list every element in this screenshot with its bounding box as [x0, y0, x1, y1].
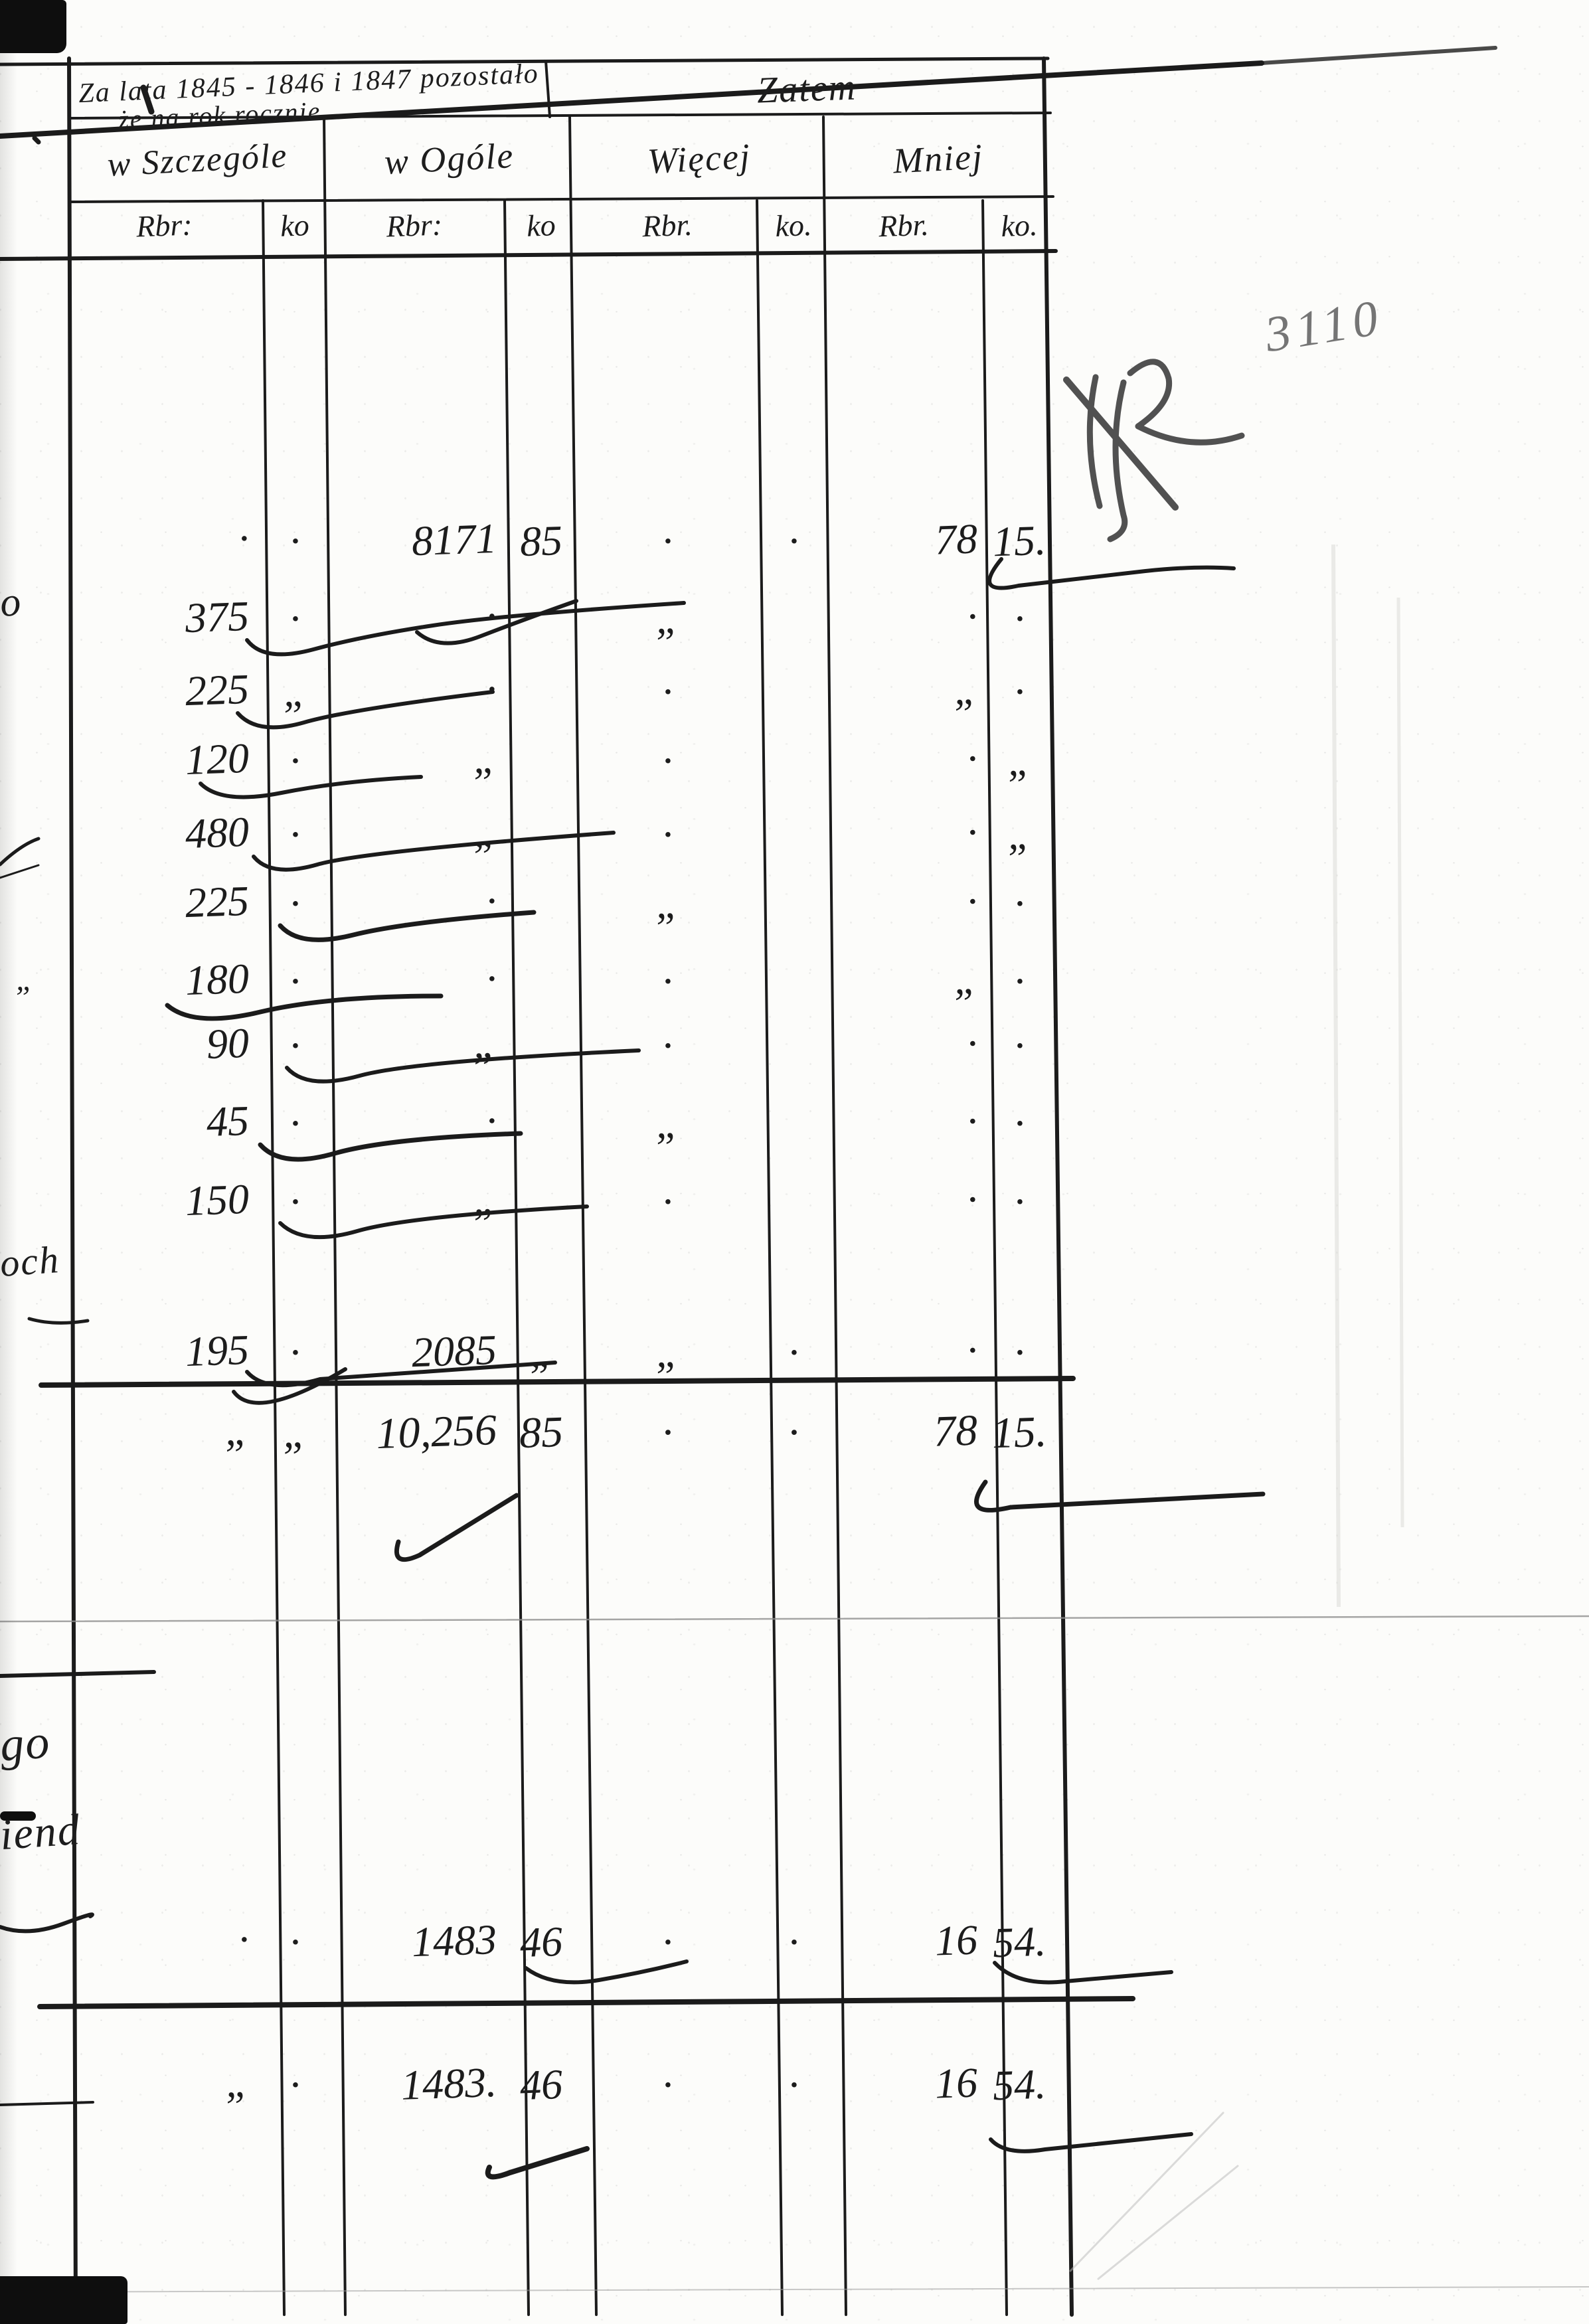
pencil-crossed-mark [1066, 362, 1242, 539]
cell-szczegole-ko: · [264, 876, 327, 931]
cell-mniej-ko: · [987, 876, 1052, 931]
section1-total-row: „ „ 10,256 85 · · 78 15. [70, 1406, 1051, 1459]
header-group-wiecej: Więcej [572, 131, 827, 186]
cell-wiecej-ko: · [761, 1325, 827, 1380]
cell-szczegole-rbr: 90 [79, 1016, 260, 1075]
cell-szczegole-rbr: 195 [79, 1323, 260, 1382]
table-row: 225 · · „ · · [70, 877, 1051, 930]
table-row: · · 8171 85 · · 78 15. [70, 515, 1051, 568]
cell-ogole-ko: 46 [509, 2057, 574, 2112]
cell-wiecej-rbr: · [577, 511, 758, 570]
cell-wiecej-rbr: · [577, 805, 758, 864]
unit-wiecej-rbr: Rbr. [577, 197, 758, 256]
unit-ogole-rbr: Rbr: [331, 198, 498, 257]
cell-mniej-ko: · [987, 664, 1052, 719]
cell-mniej-ko: · [987, 1174, 1052, 1229]
cell-mniej-rbr: · [829, 1173, 991, 1231]
cell-wiecej-rbr: · [577, 662, 758, 721]
cell-szczegole-ko: · [264, 2057, 327, 2112]
cell-ogole-rbr: 1483 [331, 1913, 505, 1972]
cell-ogole-rbr: „ [331, 1173, 505, 1232]
cell-ogole-rbr: · [331, 1094, 505, 1153]
cell-wiecej-rbr: „ [577, 1094, 758, 1153]
cell-szczegole-rbr: 480 [79, 805, 260, 864]
table-row: 120 · „ · · „ [70, 734, 1051, 788]
cell-wiecej-ko: · [761, 513, 827, 568]
scanned-ledger-page: Za lata 1845 - 1846 i 1847 pozostało że … [0, 0, 1589, 2324]
cell-wiecej-rbr: · [577, 1912, 758, 1971]
cell-mniej-ko: 54. [987, 2057, 1052, 2112]
cell-mniej-rbr: · [829, 732, 991, 790]
cell-wiecej-rbr: · [577, 1172, 758, 1231]
cell-szczegole-rbr: 375 [79, 589, 260, 648]
cell-wiecej-rbr: · [577, 731, 758, 790]
cell-mniej-rbr: „ [829, 952, 991, 1011]
unit-mniej-ko: ko. [987, 199, 1052, 254]
cell-wiecej-rbr: „ [577, 589, 758, 648]
cell-szczegole-ko: · [264, 591, 327, 646]
cell-mniej-rbr: · [829, 1094, 991, 1153]
header-group-mniej: Mniej [825, 132, 1052, 185]
cell-wiecej-ko: · [761, 1405, 827, 1460]
unit-wiecej-ko: ko. [761, 199, 827, 254]
unit-ogole-ko: ko [509, 199, 574, 254]
header-group-ogole: w Ogóle [325, 131, 574, 185]
units-row: Rbr: ko Rbr: ko Rbr. ko. Rbr. ko. [70, 201, 1051, 251]
cell-mniej-rbr: · [829, 874, 991, 933]
cell-mniej-ko: 15. [987, 513, 1052, 568]
pencil-folio-number: 3110 [1261, 289, 1387, 365]
cell-szczegole-ko: · [264, 807, 327, 862]
cell-wiecej-rbr: · [577, 2055, 758, 2114]
cell-mniej-ko: · [987, 1325, 1052, 1380]
cell-ogole-rbr: 2085 [331, 1323, 505, 1382]
table-row: 225 „ · · „ · [70, 665, 1051, 718]
cell-szczegole-ko: „ [264, 1405, 327, 1460]
table-row: 45 · · „ · · [70, 1097, 1051, 1150]
cell-mniej-ko: „ [987, 807, 1052, 862]
cell-szczegole-ko: · [264, 733, 327, 788]
cell-ogole-ko: 85 [509, 513, 574, 568]
cell-szczegole-ko: · [264, 1174, 327, 1229]
cell-mniej-rbr: 16 [829, 2056, 991, 2114]
cell-szczegole-ko: · [264, 1914, 327, 1969]
unit-szczegole-rbr: Rbr: [79, 198, 250, 257]
cell-wiecej-ko: · [761, 1914, 827, 1969]
cell-szczegole-rbr: 150 [79, 1172, 260, 1231]
cell-szczegole-rbr: 225 [79, 662, 260, 721]
cell-wiecej-rbr: · [577, 952, 758, 1011]
cell-szczegole-ko: · [264, 954, 327, 1009]
header-zatem: Zatem [567, 59, 1046, 118]
scan-edge-shadow [0, 0, 17, 2324]
margin-fragment-quote: „ [16, 961, 35, 998]
cell-mniej-rbr: 16 [829, 1913, 991, 1971]
cell-mniej-rbr: 78 [829, 512, 991, 570]
section2-total-row: „ · 1483. 46 · · 16 54. [70, 2058, 1051, 2112]
cell-mniej-rbr: · [829, 1323, 991, 1382]
cell-mniej-rbr: „ [829, 663, 991, 721]
cell-ogole-rbr: · [331, 952, 505, 1011]
cell-szczegole-ko: · [264, 513, 327, 568]
unit-szczegole-ko: ko [264, 199, 327, 254]
cell-mniej-ko: 54. [987, 1914, 1052, 1969]
cell-ogole-rbr: „ [331, 1017, 505, 1076]
margin-fragment-o: o [0, 578, 24, 627]
binding-blob-bottom-left [0, 2276, 127, 2324]
cell-ogole-rbr: „ [331, 805, 505, 865]
cell-szczegole-rbr: 180 [79, 952, 260, 1011]
unit-mniej-rbr: Rbr. [829, 198, 979, 256]
cell-mniej-ko: · [987, 1096, 1052, 1151]
cell-mniej-rbr: 78 [829, 1404, 991, 1462]
cell-szczegole-rbr: · [79, 1912, 260, 1971]
cell-wiecej-rbr: · [577, 1403, 758, 1462]
cell-ogole-ko: 46 [509, 1914, 574, 1969]
cell-wiecej-rbr: „ [577, 874, 758, 933]
cell-mniej-ko: · [987, 591, 1052, 646]
cell-mniej-rbr: · [829, 590, 991, 648]
cell-ogole-rbr: 8171 [331, 512, 505, 571]
table-row: 375 · · „ · · [70, 592, 1051, 645]
cell-mniej-ko: 15. [987, 1405, 1052, 1460]
cell-wiecej-rbr: „ [577, 1323, 758, 1382]
cell-szczegole-rbr: „ [79, 1403, 260, 1462]
cell-ogole-rbr: · [331, 663, 505, 722]
cell-szczegole-rbr: 225 [79, 874, 260, 933]
cell-szczegole-ko: „ [264, 664, 327, 719]
cell-szczegole-rbr: „ [79, 2055, 260, 2114]
cell-szczegole-ko: · [264, 1325, 327, 1380]
table-row: · · 1483 46 · · 16 54. [70, 1916, 1051, 1969]
cell-mniej-ko: „ [987, 733, 1052, 788]
margin-fragment-iend: iend [0, 1805, 82, 1861]
table-row: 195 · 2085 „ „ · · · [70, 1326, 1051, 1379]
cell-mniej-ko: · [987, 954, 1052, 1009]
table-row: 90 · „ · · · [70, 1019, 1051, 1072]
cell-wiecej-ko: · [761, 2057, 827, 2112]
cell-szczegole-rbr: 45 [79, 1094, 260, 1153]
cell-ogole-rbr: · [331, 590, 505, 649]
table-row: 480 · „ · · „ [70, 808, 1051, 861]
cell-mniej-rbr: · [829, 1017, 991, 1075]
cell-ogole-rbr: 10,256 [331, 1404, 505, 1463]
cell-ogole-ko: 85 [509, 1405, 574, 1460]
cell-mniej-rbr: · [829, 805, 991, 864]
cell-ogole-rbr: 1483. [331, 2056, 505, 2115]
cell-mniej-ko: · [987, 1018, 1052, 1073]
cell-ogole-rbr: · [331, 874, 505, 934]
margin-fragment-go: go [0, 1714, 52, 1772]
table-row: 180 · · · „ · [70, 955, 1051, 1008]
binding-blob-top-left [0, 0, 66, 53]
cell-szczegole-ko: · [264, 1096, 327, 1151]
cell-szczegole-ko: · [264, 1018, 327, 1073]
cell-ogole-ko: „ [509, 1325, 574, 1380]
margin-fragment-och: och [0, 1237, 61, 1286]
cell-wiecej-rbr: · [577, 1016, 758, 1075]
cell-szczegole-rbr: · [79, 511, 260, 570]
cell-ogole-rbr: „ [331, 732, 505, 791]
table-row: 150 · „ · · · [70, 1175, 1051, 1228]
cell-szczegole-rbr: 120 [79, 731, 260, 790]
header-group-szczegole: w Szczególe [69, 134, 327, 187]
